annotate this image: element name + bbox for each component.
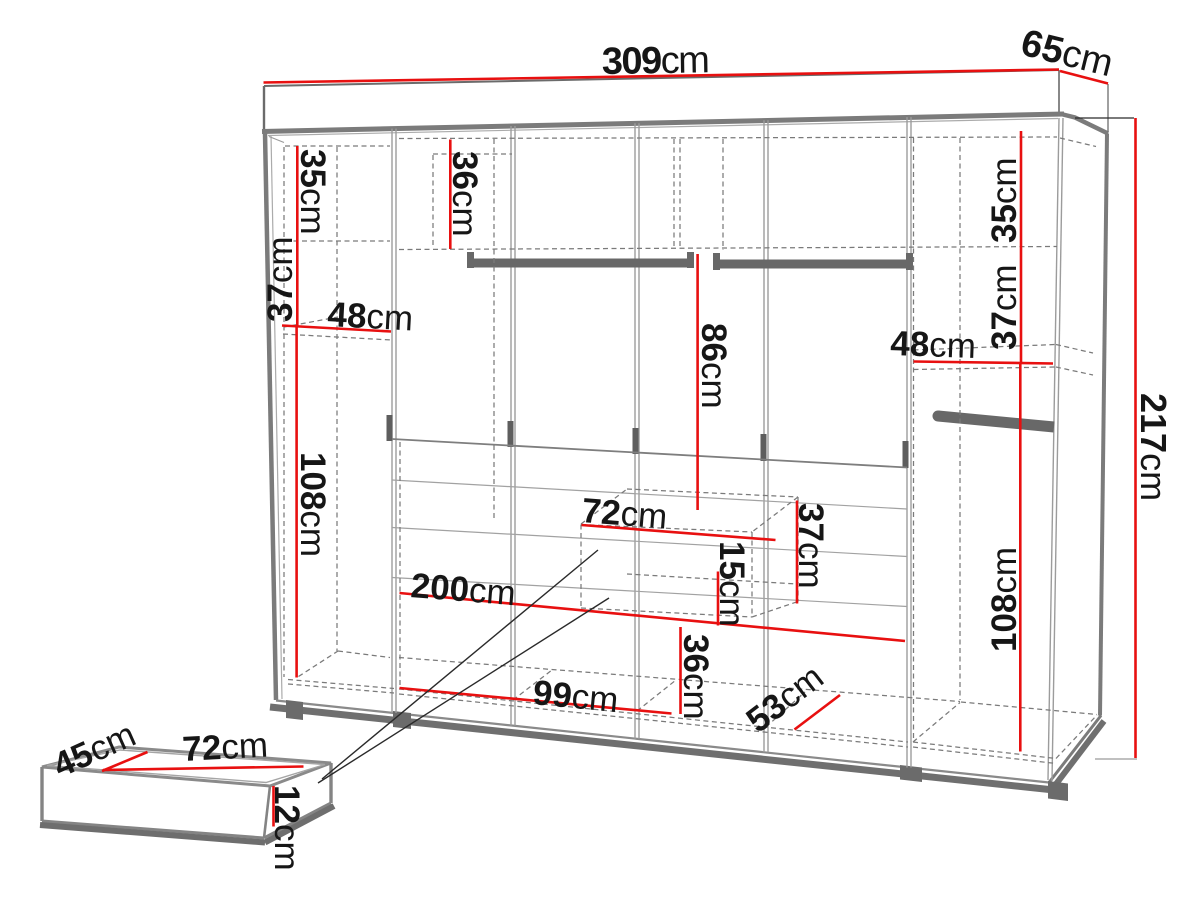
svg-text:200cm: 200cm (409, 566, 517, 613)
svg-text:48cm: 48cm (327, 295, 415, 338)
svg-text:36cm: 36cm (676, 634, 715, 720)
svg-text:217cm: 217cm (1133, 393, 1174, 501)
svg-text:309cm: 309cm (601, 39, 708, 83)
svg-text:12cm: 12cm (267, 785, 306, 871)
svg-text:108cm: 108cm (293, 452, 332, 557)
svg-text:72cm: 72cm (580, 491, 668, 537)
svg-text:35cm: 35cm (293, 149, 332, 235)
svg-text:15cm: 15cm (712, 541, 751, 627)
svg-text:37cm: 37cm (985, 264, 1024, 350)
svg-text:36cm: 36cm (445, 151, 484, 237)
svg-text:108cm: 108cm (985, 547, 1024, 652)
svg-text:37cm: 37cm (791, 503, 830, 589)
svg-text:99cm: 99cm (531, 673, 620, 720)
svg-text:86cm: 86cm (694, 323, 733, 409)
svg-text:35cm: 35cm (985, 157, 1024, 243)
svg-text:72cm: 72cm (181, 726, 269, 769)
svg-text:37cm: 37cm (261, 236, 300, 322)
svg-text:48cm: 48cm (890, 324, 977, 366)
